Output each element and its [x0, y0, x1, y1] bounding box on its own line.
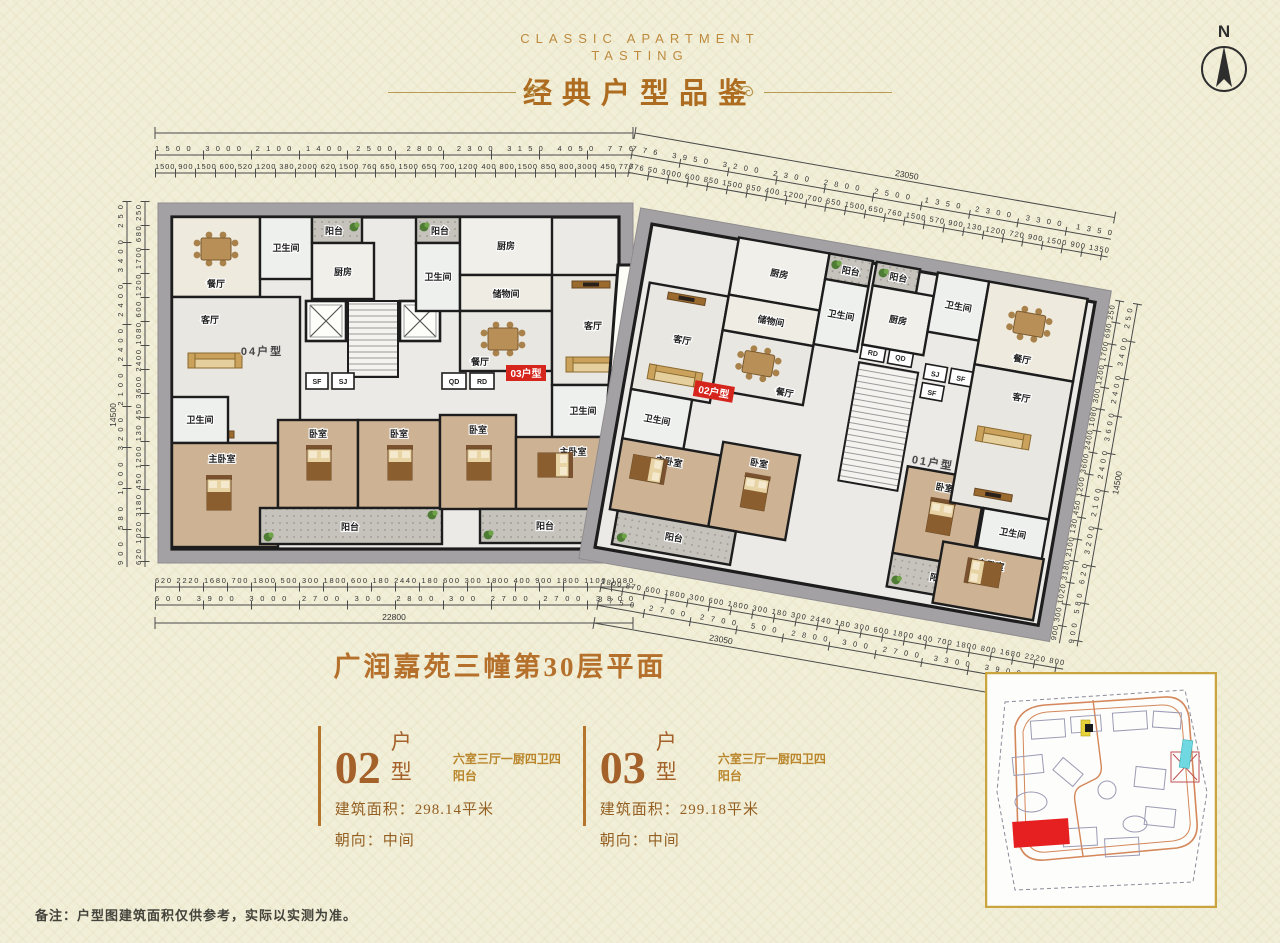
dim-chain-top-left: 1500 3000 2100 1400 2500 2800 2300 3150 … [155, 127, 633, 173]
area-label: 建筑面积： [335, 802, 415, 818]
site-map [985, 672, 1217, 908]
unit-card-02: 02 户 型 六室三厅一厨四卫四阳台 建筑面积：298.14平米 朝向：中间 [318, 726, 568, 850]
room-label-kitchen: 厨房 [334, 266, 352, 277]
unit-tagline: 六室三厅一厨四卫四阳台 [453, 750, 568, 788]
bed-icon [387, 445, 413, 480]
room-label-bedroom: 卧室 [390, 428, 408, 439]
dim-col: 900 580 1000 3200 2100 2400 2400 3400 25… [116, 205, 125, 565]
elevator-icon [306, 301, 346, 341]
flourish-icon [520, 84, 546, 100]
header-subtitle-2: TASTING [0, 47, 1280, 64]
left-wing: 餐厅 卫生间 阳台 厨房 客厅 04户型 卫生间 主卧室 卧室 [158, 203, 633, 563]
plan-title: 广润嘉苑三幢第30层平面 [0, 645, 1000, 684]
dim-total: 22800 [382, 612, 406, 622]
north-compass-icon: N [1194, 20, 1254, 98]
room-label-dining: 餐厅 [206, 278, 225, 289]
bed-icon [206, 475, 232, 510]
header: CLASSIC APARTMENT TASTING 经典户型品鉴 [0, 30, 1280, 112]
facing-label: 朝向： [335, 833, 383, 849]
room-label-bathroom: 卫生间 [569, 405, 596, 416]
flourish-icon [734, 84, 760, 100]
shaft-label-rd: RD [477, 379, 487, 386]
page: CLASSIC APARTMENT TASTING 经典户型品鉴 N [0, 0, 1280, 943]
unit-type-label: 户 型 [656, 726, 718, 788]
room-label-balcony: 阳台 [431, 225, 449, 236]
unit-number: 03 [600, 748, 646, 788]
room-label-bathroom: 卫生间 [272, 242, 299, 253]
unit-label-03: 03户型 [510, 367, 541, 380]
shaft-label-sj: SJ [339, 379, 348, 386]
dim-chain-bottom-left: 620 2220 1680 700 1800 500 300 1800 600 … [155, 576, 633, 629]
shaft-label-qd: QD [449, 379, 460, 386]
dim-row: 600 3900 3000 2700 300 2800 300 2700 270… [155, 594, 633, 603]
unit-tagline: 六室三厅一厨四卫四阳台 [718, 750, 833, 788]
area-label: 建筑面积： [600, 802, 680, 818]
bed-icon [466, 445, 492, 480]
room-label-balcony: 阳台 [325, 225, 343, 236]
page-title: 经典户型品鉴 [0, 70, 1280, 112]
unit-number: 02 [335, 748, 381, 788]
unit-label-04: 04户型 [241, 344, 283, 358]
area-value: 298.14平米 [415, 802, 494, 818]
divider-line-right [764, 92, 892, 93]
dim-row: 1500 3000 2100 1400 2500 2800 2300 3150 … [155, 144, 633, 153]
facing-label: 朝向： [600, 833, 648, 849]
facing-value: 中间 [383, 833, 415, 849]
room-label-dining: 餐厅 [470, 356, 489, 367]
card-rule [583, 726, 586, 826]
divider-line-left [388, 92, 516, 93]
compass-n-label: N [1218, 22, 1230, 41]
floor-plan: 餐厅 卫生间 阳台 厨房 客厅 04户型 卫生间 主卧室 卧室 [110, 115, 1180, 715]
dim-total: 14500 [110, 403, 118, 427]
room-label-bedroom: 卧室 [309, 428, 327, 439]
shaft-label-sf: SF [313, 379, 323, 386]
shaft-label-sj: SJ [930, 371, 940, 379]
room-label-living: 客厅 [200, 314, 219, 325]
unit-type-label: 户 型 [391, 726, 453, 788]
dim-row: 1500 900 1500 600 520 1200 380 2000 620 … [155, 162, 633, 171]
stairs [348, 301, 398, 377]
dim-row: 620 2220 1680 700 1800 500 300 1800 600 … [155, 576, 633, 585]
room-label-storage: 储物间 [492, 288, 519, 299]
room-label-balcony: 阳台 [536, 520, 554, 531]
unit-card-03: 03 户 型 六室三厅一厨四卫四阳台 建筑面积：299.18平米 朝向：中间 [583, 726, 833, 850]
room-label-bedroom: 卧室 [469, 424, 487, 435]
room-label-bathroom: 卫生间 [424, 271, 451, 282]
card-rule [318, 726, 321, 826]
footer-note: 备注：户型图建筑面积仅供参考，实际以实测为准。 [35, 905, 357, 924]
dim-chain-left-vertical: 900 580 1000 3200 2100 2400 2400 3400 25… [110, 201, 145, 567]
unit-area-line: 建筑面积：299.18平米 [600, 798, 833, 819]
room-label-master-bedroom: 主卧室 [208, 453, 235, 464]
right-wing: 客厅 卫生间 餐厅 厨房 储物间 阳台 卫生间 主卧室 [579, 208, 1112, 642]
unit-area-line: 建筑面积：298.14平米 [335, 798, 568, 819]
unit-facing-line: 朝向：中间 [600, 829, 833, 850]
dim-total: 14500 [1110, 470, 1124, 495]
header-subtitle-1: CLASSIC APARTMENT [0, 30, 1280, 47]
bed-icon [538, 452, 573, 478]
dim-col: 620 1020 3180 450 1200 130 450 3600 2400… [134, 205, 143, 565]
highlighted-building [1012, 818, 1070, 848]
room-label-kitchen: 厨房 [497, 240, 515, 251]
area-value: 299.18平米 [680, 802, 759, 818]
bed-icon [306, 445, 332, 480]
room-label-balcony: 阳台 [341, 521, 359, 532]
room-label-bathroom: 卫生间 [186, 414, 213, 425]
room-label-living: 客厅 [583, 320, 602, 331]
facing-value: 中间 [648, 833, 680, 849]
unit-facing-line: 朝向：中间 [335, 829, 568, 850]
